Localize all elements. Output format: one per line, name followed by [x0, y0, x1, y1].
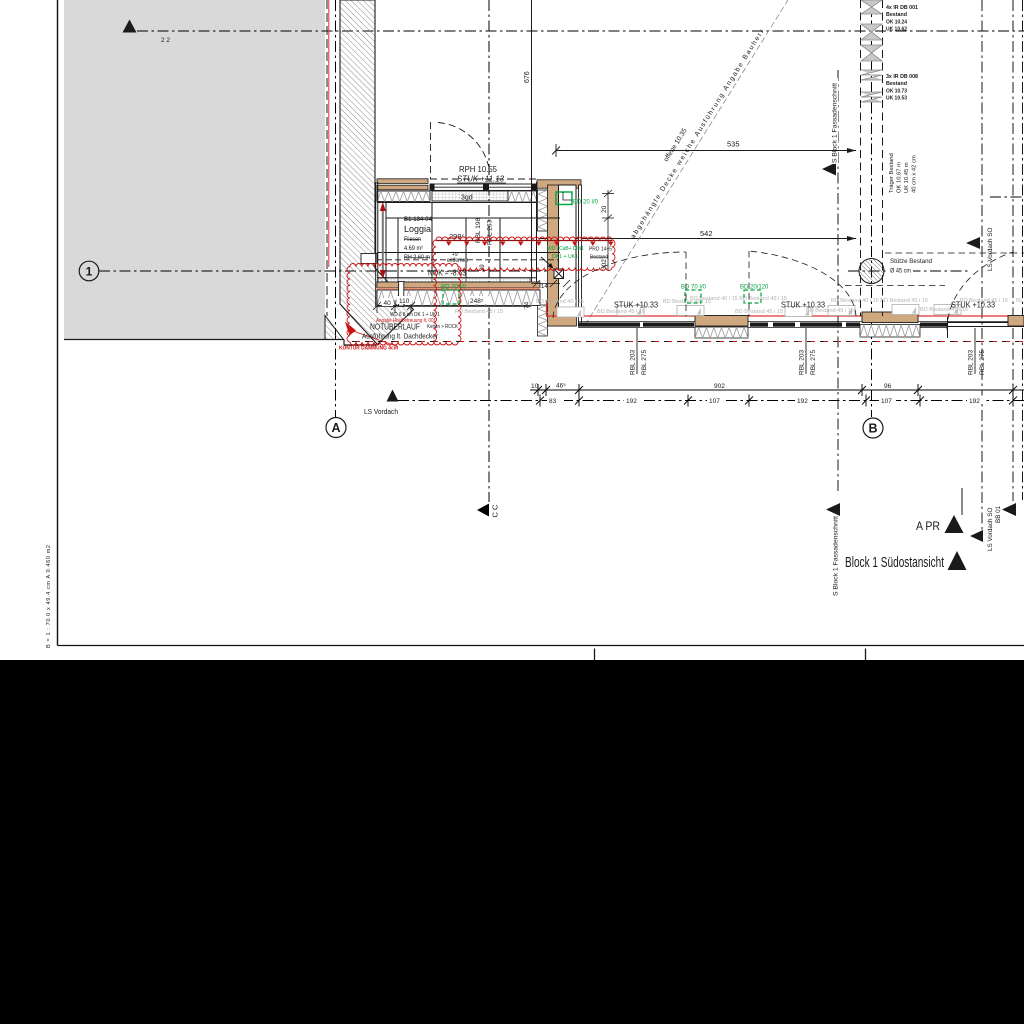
svg-text:S Block 1 Fassadenschnitt: S Block 1 Fassadenschnitt — [832, 83, 839, 163]
svg-text:Loggia: Loggia — [404, 224, 431, 234]
svg-text:NOTÜBERLAUF: NOTÜBERLAUF — [370, 322, 420, 332]
svg-text:RBL 275: RBL 275 — [810, 350, 817, 375]
svg-text:Fliesen: Fliesen — [404, 237, 421, 243]
svg-text:NOK = -8.63: NOK = -8.63 — [428, 268, 466, 278]
svg-text:A: A — [331, 421, 340, 435]
svg-text:10: 10 — [531, 383, 539, 390]
svg-text:UK 10.45 m: UK 10.45 m — [904, 162, 910, 193]
svg-text:110: 110 — [399, 298, 410, 305]
svg-text:BB 01: BB 01 — [995, 505, 1002, 523]
svg-text:BD Bestand 40 i 15: BD Bestand 40 i 15 — [536, 299, 584, 305]
svg-text:14: 14 — [541, 284, 548, 290]
svg-text:LS Vordach SO: LS Vordach SO — [987, 227, 994, 271]
svg-text:46⁵: 46⁵ — [556, 383, 566, 390]
svg-text:1: 1 — [86, 265, 93, 279]
svg-text:BD Bestand 45 i 15: BD Bestand 45 i 15 — [735, 309, 783, 315]
svg-text:248⁵: 248⁵ — [470, 298, 484, 305]
svg-text:40: 40 — [384, 300, 392, 307]
svg-text:BD 70 I/0: BD 70 I/0 — [681, 285, 707, 291]
svg-text:LS Vordach: LS Vordach — [364, 409, 398, 416]
svg-text:STUK +10.33: STUK +10.33 — [951, 300, 995, 310]
svg-text:+9: +9 — [452, 252, 458, 258]
svg-text:WD \ CaB+ DIN1: WD \ CaB+ DIN1 — [547, 246, 584, 252]
svg-text:Bestand: Bestand — [886, 12, 907, 18]
svg-text:902: 902 — [714, 383, 725, 390]
svg-text:RPH 10.55: RPH 10.55 — [459, 165, 498, 174]
svg-text:RH 2.60 m: RH 2.60 m — [404, 255, 430, 261]
svg-text:676: 676 — [524, 71, 531, 83]
svg-text:A PR: A PR — [916, 519, 940, 533]
svg-text:OK 10.73: OK 10.73 — [886, 88, 907, 94]
svg-text:107: 107 — [881, 398, 892, 405]
svg-text:40 cm x 42 cm: 40 cm x 42 cm — [912, 155, 918, 193]
svg-text:535: 535 — [727, 140, 740, 149]
svg-text:RBL 275: RBL 275 — [979, 350, 986, 375]
svg-text:Träger Bestand: Träger Bestand — [889, 153, 895, 193]
svg-text:entfernen: entfernen — [447, 258, 468, 264]
svg-text:BD Bestand 40 i 15 BD Bestand: BD Bestand 40 i 15 BD Bestand 45 i 15 — [690, 296, 787, 302]
svg-text:BD Bestand 40 i 15 BD Bestand: BD Bestand 40 i 15 BD Bestand 45 i 15 — [831, 298, 928, 304]
svg-text:UK 10.53: UK 10.53 — [886, 96, 907, 102]
svg-text:RBL 263: RBL 263 — [487, 220, 494, 245]
svg-text:4x IR DB 001: 4x IR DB 001 — [886, 5, 918, 11]
svg-text:299⁵: 299⁵ — [449, 232, 465, 241]
svg-text:DK1 + UK1: DK1 + UK1 — [552, 254, 578, 260]
svg-text:STUK +10.33: STUK +10.33 — [781, 300, 825, 310]
svg-text:RBL 203: RBL 203 — [630, 350, 637, 375]
svg-text:192: 192 — [626, 398, 637, 405]
svg-text:Bestand: Bestand — [886, 81, 907, 87]
svg-text:BD Bestand 45 i 15: BD Bestand 45 i 15 — [597, 309, 645, 315]
svg-text:B: B — [868, 422, 877, 436]
svg-text:RBL 275: RBL 275 — [641, 350, 648, 375]
svg-text:PRD 14+5: PRD 14+5 — [589, 247, 612, 253]
svg-text:3gd: 3gd — [461, 195, 473, 202]
svg-text:74: 74 — [524, 301, 531, 309]
svg-text:S Block 1 Fassadenschnitt: S Block 1 Fassadenschnitt — [833, 516, 840, 596]
svg-text:BD 20/120: BD 20/120 — [740, 285, 769, 291]
svg-text:RBL 203: RBL 203 — [799, 350, 806, 375]
svg-text:3x IR DB 008: 3x IR DB 008 — [886, 74, 918, 80]
svg-text:4.69 m²: 4.69 m² — [404, 246, 423, 252]
svg-text:Ausführung lt. Dachdecker: Ausführung lt. Dachdecker — [362, 332, 438, 341]
svg-text:96: 96 — [884, 383, 892, 390]
svg-text:STUK +11.13: STUK +11.13 — [457, 175, 505, 184]
svg-text:BD 70 I/0: BD 70 I/0 — [441, 285, 467, 291]
svg-text:C C: C C — [491, 504, 500, 518]
svg-text:RD Bestand 45 i 15: RD Bestand 45 i 15 — [455, 309, 503, 315]
svg-text:Bestand: Bestand — [590, 255, 608, 261]
svg-text:BD: BD — [1016, 298, 1022, 304]
svg-text:Ø 45 cm: Ø 45 cm — [890, 268, 911, 275]
svg-text:2 2: 2 2 — [161, 37, 170, 44]
svg-text:UK 10.62: UK 10.62 — [886, 27, 907, 33]
svg-text:BD 20 I/0: BD 20 I/0 — [573, 199, 598, 206]
svg-text:20: 20 — [601, 205, 608, 213]
svg-text:Block 1 Südostansicht: Block 1 Südostansicht — [845, 555, 944, 571]
svg-text:LS Vordach SO: LS Vordach SO — [987, 507, 994, 551]
svg-text:OK 10.24: OK 10.24 — [886, 19, 907, 25]
svg-text:Ketten > ROCK: Ketten > ROCK — [427, 324, 458, 330]
svg-text:RBL 203: RBL 203 — [968, 350, 975, 375]
svg-text:KONTUR DÄMMUNG 4cm: KONTUR DÄMMUNG 4cm — [339, 345, 398, 352]
svg-text:OK 10.87 m: OK 10.87 m — [897, 162, 903, 193]
svg-text:192: 192 — [797, 398, 808, 405]
svg-text:B = 1 : 70.0 x 49.4 cm A 0.4: B = 1 : 70.0 x 49.4 cm A 0.460 m2 — [46, 545, 52, 648]
svg-text:83: 83 — [549, 398, 557, 405]
svg-text:STUK +10.33: STUK +10.33 — [614, 300, 658, 310]
svg-text:542: 542 — [700, 229, 713, 238]
svg-text:107: 107 — [709, 398, 720, 405]
svg-text:192: 192 — [969, 398, 980, 405]
svg-text:Stütze Bestand: Stütze Bestand — [890, 258, 932, 265]
svg-text:B1 134 04: B1 134 04 — [404, 216, 432, 223]
